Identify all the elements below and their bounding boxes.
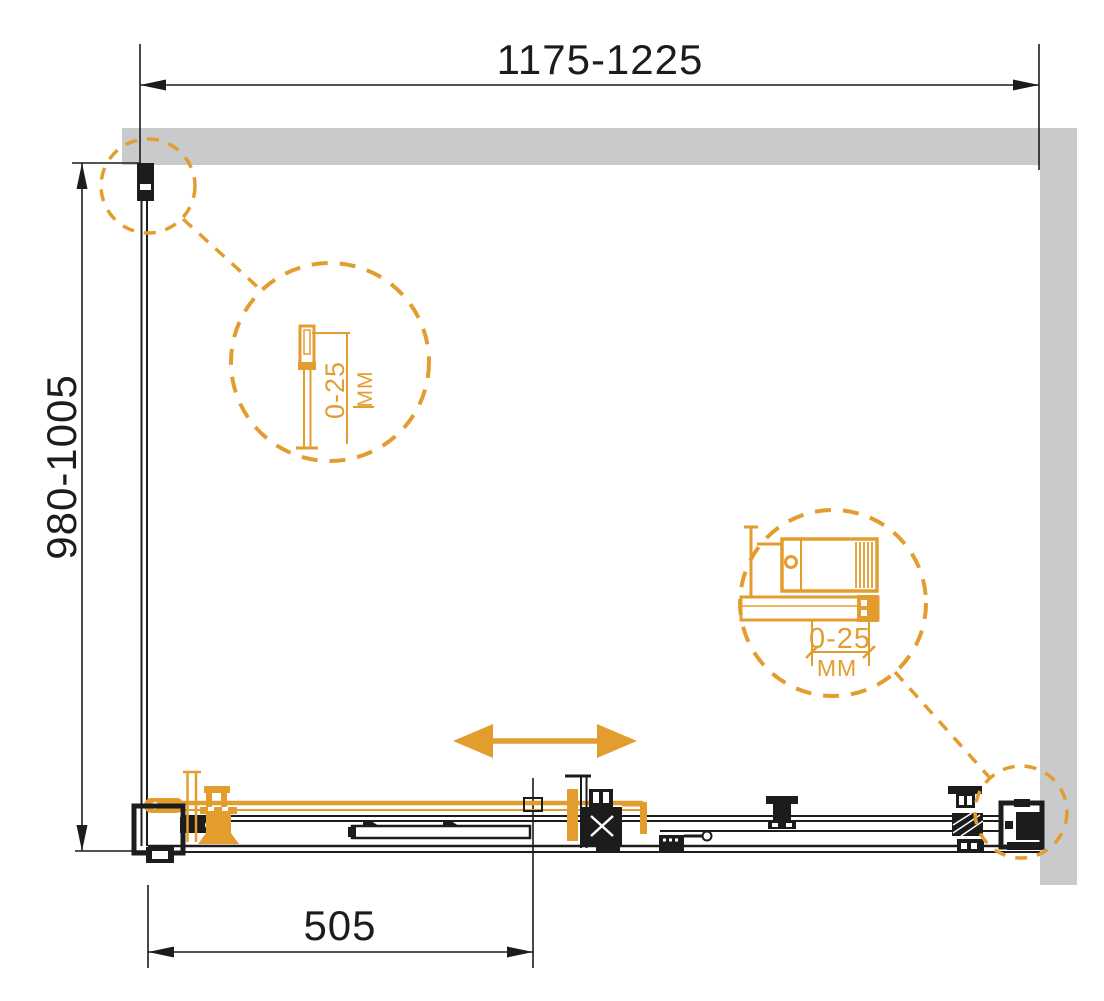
left-roller-carriage <box>183 772 239 844</box>
slide-direction-arrow <box>453 724 637 758</box>
dimension-bottom-door: 505 <box>148 778 533 968</box>
guide-arm-end <box>703 832 712 841</box>
adjust-range-label: 0-25 <box>809 623 871 655</box>
glass-post <box>744 527 758 596</box>
profile-channel <box>300 326 314 366</box>
shower-enclosure-plan-drawing: 1175-1225 980-1005 505 <box>0 0 1104 1001</box>
body-slot-b <box>967 796 972 805</box>
glass-edges <box>304 370 311 448</box>
door-edge-bar <box>567 789 578 841</box>
feet-slot-b <box>786 823 792 827</box>
depth-range-label: 980-1005 <box>38 374 85 560</box>
foot-slot-a <box>961 843 967 849</box>
carriage-flange <box>200 807 237 814</box>
profile-bottom-tab <box>1007 842 1042 850</box>
roller-hanger-1 <box>766 796 798 829</box>
profile-channel-inner <box>304 330 310 354</box>
roller-base <box>198 833 239 844</box>
roller-foot <box>596 845 620 853</box>
orange-l-bracket <box>640 802 647 834</box>
detail-callout-right: 0-25 MM <box>740 510 926 696</box>
width-range-label: 1175-1225 <box>497 36 704 83</box>
flange-notch-a <box>208 807 214 811</box>
door-handle-bar <box>348 821 530 838</box>
housing-hatch <box>856 542 872 588</box>
body-slot-a <box>959 796 964 805</box>
arrow-head-right <box>597 724 637 758</box>
callout-links <box>101 139 1067 858</box>
side-glass-panel <box>137 163 154 846</box>
hanger-slot-a <box>593 792 599 803</box>
drawing-canvas: 1175-1225 980-1005 505 <box>0 0 1104 1001</box>
carriage-top-bar <box>204 786 230 793</box>
door-width-label: 505 <box>303 902 376 949</box>
mid-guide-bracket <box>659 832 712 853</box>
profile-insert <box>1016 812 1042 840</box>
right-wall-profile <box>1001 799 1042 850</box>
flange-notch-b <box>222 807 228 811</box>
adjust-unit-label: MM <box>817 655 857 681</box>
center-roller-carriage <box>565 776 647 853</box>
rail-end-clip <box>857 595 878 622</box>
hanger-block <box>589 789 613 807</box>
wall-profile-top <box>137 163 154 201</box>
hanger-cap <box>948 786 982 794</box>
clip-slot-b <box>861 610 867 616</box>
clip-slot-a <box>861 600 867 606</box>
door-track-assembly <box>134 772 1042 863</box>
left-bracket-foot-slot <box>152 851 168 859</box>
adjust-range-label: 0-25 <box>320 361 350 419</box>
wall-profile-slot <box>140 184 151 190</box>
profile-top-tab <box>1014 799 1030 807</box>
roller-body <box>206 814 231 833</box>
housing-screw <box>786 557 797 568</box>
leader-left <box>183 219 262 291</box>
right-wall <box>1040 128 1077 885</box>
profile-clamp <box>298 362 316 370</box>
glass-edges <box>142 201 148 846</box>
top-wall <box>122 128 1040 165</box>
hanger-slot-b <box>603 792 609 803</box>
profile-screw <box>1005 821 1013 829</box>
detail-callout-left: 0-25 MM <box>231 263 429 461</box>
feet-slot-a <box>772 823 778 827</box>
hanger-cap <box>766 796 798 804</box>
hanger-body <box>956 794 975 808</box>
leader-right <box>895 672 990 778</box>
guide-block <box>659 835 684 852</box>
arrow-head-left <box>453 724 493 758</box>
adjust-unit-label: MM <box>354 371 377 408</box>
handle-bar <box>352 826 530 838</box>
foot-slot-b <box>971 843 977 849</box>
walls <box>122 128 1077 885</box>
dimension-left-depth: 980-1005 <box>38 163 148 851</box>
hanger-body <box>773 804 791 821</box>
handle-bar-end <box>348 827 356 837</box>
